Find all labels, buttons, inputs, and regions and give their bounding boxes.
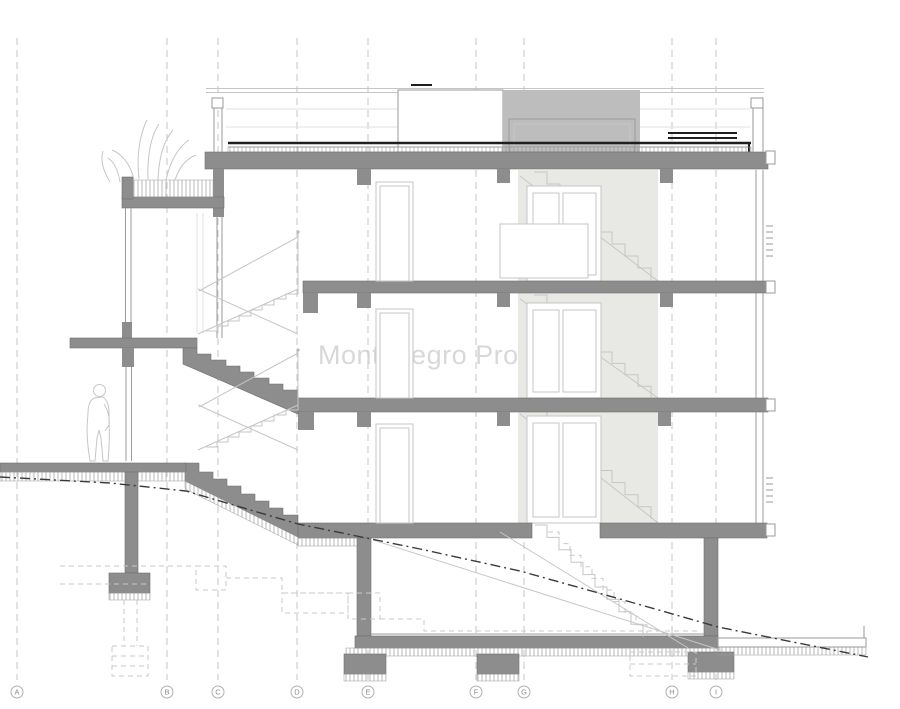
left-parapet-cap: [212, 98, 223, 108]
footing-e: [344, 654, 386, 674]
grid-label-E: E: [365, 688, 370, 697]
balcony-edge-beam: [122, 348, 134, 367]
ground-slab-left: [298, 523, 532, 538]
planter-plants: [102, 120, 196, 182]
right-bracket-f3: [766, 399, 775, 411]
interior-doors: [376, 182, 413, 523]
floor2-beam-right: [660, 293, 673, 307]
grid-label-F: F: [474, 688, 479, 697]
basement-wall-right: [704, 538, 718, 636]
ground-slab-right: [600, 523, 767, 538]
roof: [205, 85, 768, 169]
floor2-beam-left: [303, 293, 318, 313]
core-door-frame-f2: [527, 303, 601, 398]
person-figure: [87, 385, 109, 462]
roof-slab: [205, 152, 768, 169]
upper-left-wall-step: [213, 208, 224, 217]
basement: [60, 472, 866, 681]
grid-label-H: H: [669, 688, 674, 697]
footing-b: [109, 573, 150, 593]
footing-b-hatch: [109, 593, 150, 600]
site-slab-right-hatch: [718, 647, 866, 655]
basement-slab-hatch: [346, 648, 720, 656]
section-stair-exterior: [185, 463, 298, 537]
roof-insulation-hatch: [228, 147, 751, 152]
basement-wall-left: [357, 538, 371, 636]
footing-fg: [477, 654, 519, 674]
terrace-slab: [0, 463, 186, 472]
left-stairs: [183, 230, 300, 545]
grid-label-D: D: [294, 688, 300, 697]
grid-label-G: G: [521, 688, 527, 697]
floor3-beam-right: [658, 412, 671, 426]
left-terrace: [0, 385, 186, 482]
section-stair-mid: [183, 348, 298, 414]
floor3-beam-left: [298, 412, 314, 430]
door-frame-f1: [376, 182, 413, 281]
roof-beam-right: [660, 169, 673, 183]
core-cabinet-f1: [500, 224, 588, 278]
grid-label-B: B: [164, 688, 169, 697]
floor2-beam: [357, 293, 371, 308]
drawing-page: ABCDEFGHI Montenegro Prospects: [0, 0, 900, 709]
footing-e-hatch: [344, 674, 386, 681]
right-level-ticks: [766, 226, 773, 502]
grid-label-C: C: [215, 688, 221, 697]
floor2-slab: [303, 281, 768, 293]
elevation-stair-upper: [198, 230, 300, 334]
right-parapet-cap: [751, 98, 763, 108]
building-section-drawing: ABCDEFGHI Montenegro Prospects: [0, 0, 900, 709]
planter-slab: [122, 197, 224, 208]
planter-upstand: [122, 177, 133, 199]
floor3-slab: [298, 398, 768, 412]
right-bracket-f2: [766, 281, 775, 293]
site-slab-right: [718, 638, 866, 647]
grid-label-A: A: [14, 688, 19, 697]
footing-fg-hatch: [477, 674, 519, 681]
roof-beam-mid: [497, 169, 510, 183]
door-frame-f2: [376, 309, 413, 398]
roof-beam: [357, 169, 371, 185]
right-bracket-ground: [766, 524, 775, 536]
floor3-beam-mid: [497, 412, 510, 426]
terrace-column: [125, 472, 138, 573]
right-bracket-roof: [766, 151, 775, 164]
floor3-beam: [357, 412, 371, 427]
right-facade: [756, 151, 775, 536]
terrace-hatch: [0, 472, 186, 481]
balcony-slab: [70, 338, 197, 348]
basement-slab: [355, 636, 718, 648]
planter-soil-hatch: [133, 180, 213, 197]
core-door-frame-f3: [527, 416, 601, 523]
stair-core: [500, 170, 662, 526]
door-frame-f3: [376, 424, 413, 523]
balcony-upstand: [122, 322, 132, 338]
ground-slab-hatch: [298, 538, 364, 546]
floor2-beam-mid: [497, 293, 510, 307]
grid-label-I: I: [715, 688, 717, 697]
